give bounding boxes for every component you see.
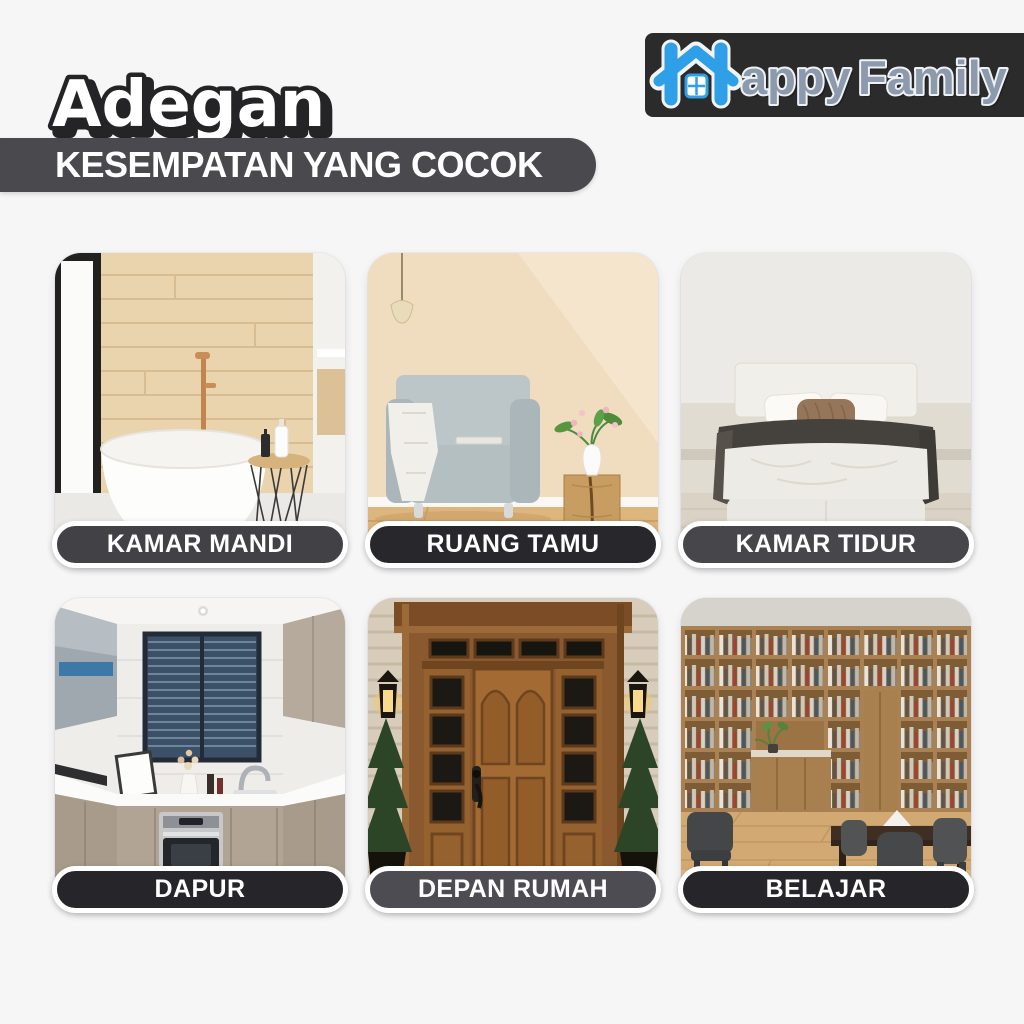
happy-family-logo: appy appy Family Family (645, 33, 1024, 117)
card-label-kamar-mandi: KAMAR MANDI (52, 521, 348, 568)
scene-card-living-room: RUANG TAMU (368, 253, 658, 565)
front-door-photo (368, 598, 658, 910)
kitchen-window (145, 634, 259, 760)
sidelight-right (556, 669, 602, 894)
card-label-text: DAPUR (155, 875, 246, 904)
sidelight-left (424, 669, 470, 894)
card-label-text: KAMAR TIDUR (736, 530, 917, 559)
bed (713, 363, 939, 533)
card-label-text: KAMAR MANDI (107, 530, 293, 559)
front-door (472, 669, 552, 896)
logo-word-appy: appy (741, 51, 851, 104)
card-label-dapur: DAPUR (52, 866, 348, 913)
logo-word-family: Family (858, 51, 1007, 104)
bathroom-photo (55, 253, 345, 565)
card-label-text: BELAJAR (766, 875, 887, 904)
card-label-ruang-tamu: RUANG TAMU (365, 521, 661, 568)
scene-card-front-door: DEPAN RUMAH (368, 598, 658, 910)
scene-card-kitchen: DAPUR (55, 598, 345, 910)
page-title-text: Adegan (52, 68, 325, 142)
living-room-photo (368, 253, 658, 565)
subtitle-banner-text: KESEMPATAN YANG COCOK (55, 144, 543, 186)
scene-card-bedroom: KAMAR TIDUR (681, 253, 971, 565)
kitchen-photo (55, 598, 345, 910)
card-label-text: DEPAN RUMAH (418, 875, 608, 904)
bookshelf-wall (681, 626, 971, 812)
scene-card-study: BELAJAR (681, 598, 971, 910)
study-photo (681, 598, 971, 910)
poster-page: Adegan Adegan appy appy Family Family KE… (0, 0, 1024, 1024)
card-label-depan-rumah: DEPAN RUMAH (365, 866, 661, 913)
card-label-belajar: BELAJAR (678, 866, 974, 913)
bedroom-photo (681, 253, 971, 565)
card-label-kamar-tidur: KAMAR TIDUR (678, 521, 974, 568)
subtitle-banner: KESEMPATAN YANG COCOK (0, 138, 596, 192)
armchair (386, 375, 540, 518)
card-label-text: RUANG TAMU (427, 530, 600, 559)
scene-card-bathroom: KAMAR MANDI (55, 253, 345, 565)
house-icon (659, 41, 733, 107)
